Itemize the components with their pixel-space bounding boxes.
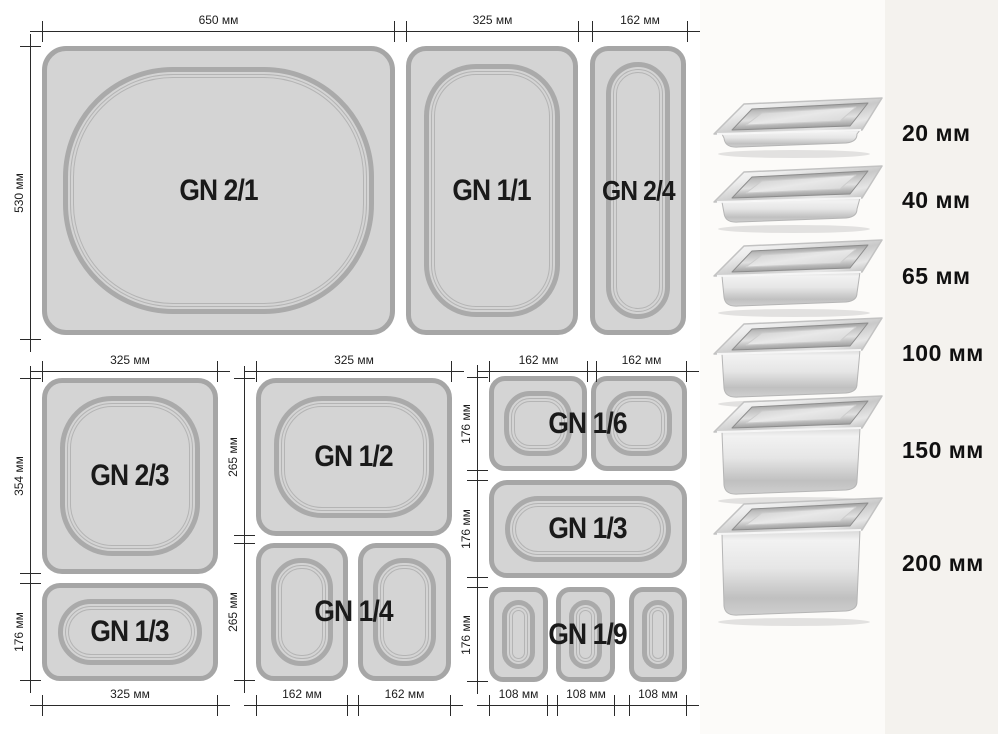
tray-label-gn-2-1: GN 2/1: [47, 51, 390, 330]
dim-width-650: 650 мм: [42, 31, 395, 32]
tray-label-gn-2-3: GN 2/3: [47, 383, 213, 569]
tick: [20, 583, 41, 584]
tick: [467, 377, 488, 378]
tray-gn-1-3-right: GN 1/3: [489, 480, 687, 578]
tray-gn-1-3-left: GN 1/3: [42, 583, 218, 681]
tray-label-gn-1-1: GN 1/1: [411, 51, 573, 330]
dim-label: 176 мм: [460, 615, 472, 655]
tray-label-gn-1-9: GN 1/9: [489, 587, 687, 682]
dim-label: 162 мм: [358, 688, 451, 700]
tick: [20, 680, 41, 681]
dim-label: 108 мм: [629, 688, 687, 700]
tray-label-gn-1-4: GN 1/4: [256, 543, 451, 681]
dim-label: 162 мм: [256, 688, 348, 700]
pan-depth-label-40mm: 40 мм: [902, 186, 994, 214]
tray-label-gn-1-2: GN 1/2: [261, 383, 447, 531]
dim-width-162-gn14b: 162 мм: [358, 705, 451, 706]
dim-label: 325 мм: [256, 354, 452, 366]
tray-gn-2-3: GN 2/3: [42, 378, 218, 574]
pan-depth-label-200mm: 200 мм: [902, 549, 994, 577]
dim-label: 176 мм: [13, 612, 25, 652]
dim-width-162-top: 162 мм: [592, 31, 688, 32]
tick: [467, 681, 488, 682]
dim-label: 108 мм: [489, 688, 548, 700]
tray-label-gn-1-6: GN 1/6: [489, 376, 687, 471]
dim-label: 265 мм: [227, 592, 239, 632]
dim-height-176-gn13: 176 мм: [477, 480, 478, 578]
pan-depth-label-65mm: 65 мм: [902, 262, 994, 290]
dim-height-530: 530 мм: [30, 46, 31, 340]
gastronorm-sizes-diagram: GN 2/1 GN 1/1 GN 2/4 GN 2/3 GN 1/3 GN 1/…: [0, 0, 998, 734]
dim-label: 176 мм: [460, 509, 472, 549]
tick: [20, 378, 41, 379]
pan-photo-150mm: [710, 392, 888, 510]
dim-label: 530 мм: [13, 173, 25, 213]
tick: [234, 378, 255, 379]
tick: [234, 543, 255, 544]
tray-gn-2-1: GN 2/1: [42, 46, 395, 335]
dim-height-176-gn16: 176 мм: [477, 377, 478, 471]
dim-label: 108 мм: [557, 688, 615, 700]
dim-label: 265 мм: [227, 437, 239, 477]
pan-photo-200mm: [710, 494, 888, 631]
dim-label: 325 мм: [42, 688, 218, 700]
tick: [20, 339, 41, 340]
dim-width-325-bottom: 325 мм: [42, 705, 218, 706]
pan-photo-20mm: [710, 94, 888, 163]
dim-width-108-c: 108 мм: [629, 705, 687, 706]
pan-depth-label-20mm: 20 мм: [902, 119, 994, 147]
dim-width-325-gn23: 325 мм: [42, 371, 218, 372]
dim-label: 354 мм: [13, 456, 25, 496]
dim-height-176-left: 176 мм: [30, 583, 31, 681]
pan-photo-40mm: [710, 162, 888, 238]
dim-label: 325 мм: [406, 14, 579, 26]
dim-width-325-gn12: 325 мм: [256, 371, 452, 372]
dim-width-108-a: 108 мм: [489, 705, 548, 706]
tick: [467, 587, 488, 588]
tick: [467, 480, 488, 481]
dim-label: 162 мм: [596, 354, 687, 366]
pan-depth-label-150mm: 150 мм: [902, 436, 994, 464]
dim-width-162-gn16a: 162 мм: [489, 371, 588, 372]
pan-depth-label-100mm: 100 мм: [902, 339, 994, 367]
dim-height-176-gn19: 176 мм: [477, 587, 478, 682]
tray-label-gn-1-3-left: GN 1/3: [47, 588, 213, 676]
tray-gn-2-4: GN 2/4: [590, 46, 686, 335]
dim-height-265-gn12: 265 мм: [244, 378, 245, 536]
dim-label: 176 мм: [460, 404, 472, 444]
tray-label-gn-1-3-right: GN 1/3: [494, 485, 682, 573]
tray-gn-1-1: GN 1/1: [406, 46, 578, 335]
dim-height-265-gn14: 265 мм: [244, 543, 245, 681]
dim-label: 162 мм: [592, 14, 688, 26]
tick: [20, 46, 41, 47]
dim-width-108-b: 108 мм: [557, 705, 615, 706]
dim-label: 325 мм: [42, 354, 218, 366]
tick: [234, 680, 255, 681]
dim-label: 162 мм: [489, 354, 588, 366]
dim-height-354: 354 мм: [30, 378, 31, 574]
dim-width-162-gn14a: 162 мм: [256, 705, 348, 706]
dim-width-162-gn16b: 162 мм: [596, 371, 687, 372]
tray-label-gn-2-4: GN 2/4: [595, 51, 681, 330]
tray-gn-1-2: GN 1/2: [256, 378, 452, 536]
pan-depths-panel: 20 мм 40 мм 65 мм 100 мм 150 мм 200 мм: [700, 0, 998, 734]
panel-background-strip: [885, 0, 998, 734]
dim-width-325-top: 325 мм: [406, 31, 579, 32]
dim-label: 650 мм: [42, 14, 395, 26]
pan-photo-65mm: [710, 236, 888, 322]
